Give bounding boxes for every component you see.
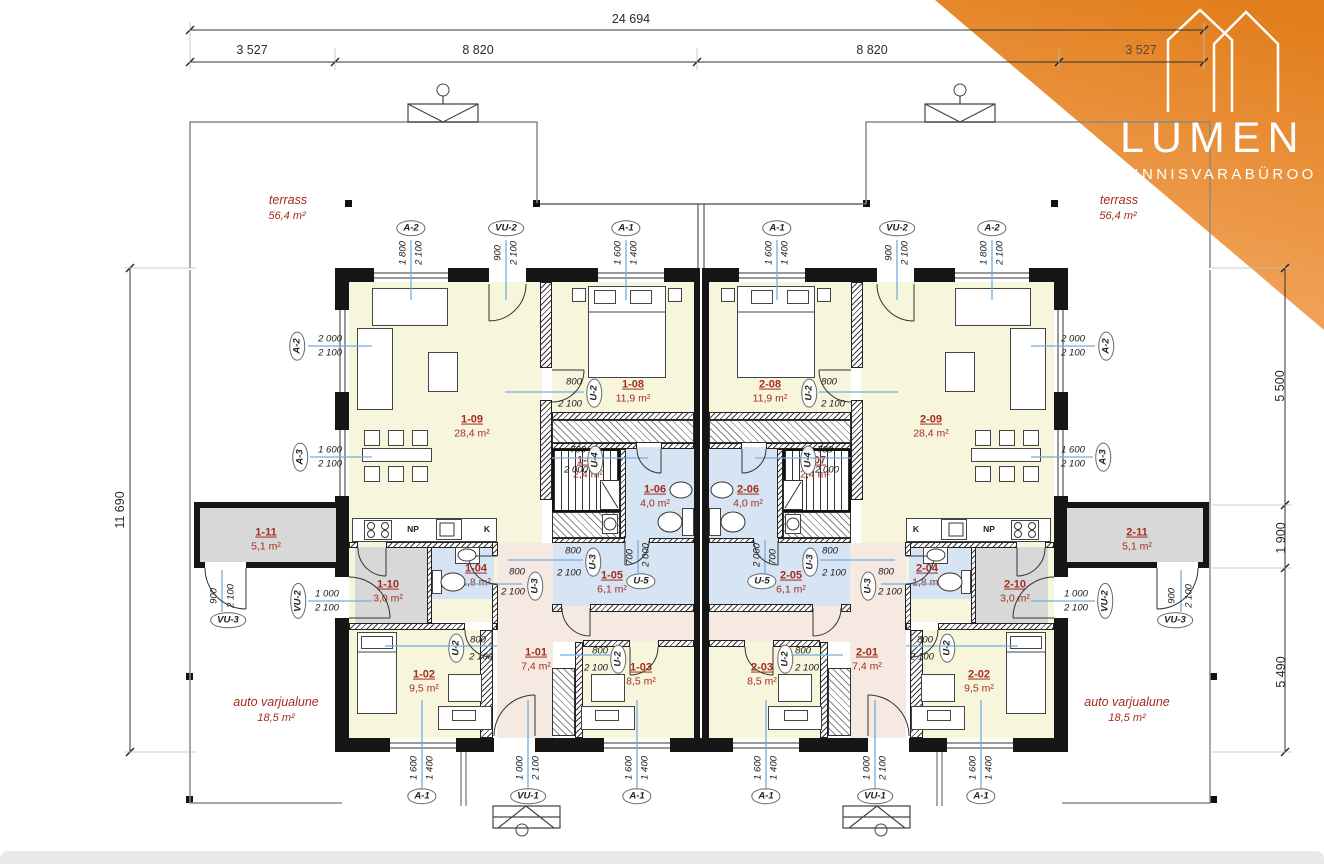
room-id: 2-08 <box>753 379 788 393</box>
opening-dim: 800 <box>565 546 581 557</box>
wall-party <box>694 268 709 738</box>
room-area: 7,4 m² <box>852 660 882 673</box>
nightstand <box>668 288 682 302</box>
opening-dim: 1 600 <box>613 241 624 265</box>
room-id: 2-11 <box>1122 527 1152 541</box>
room-id: 1-04 <box>461 563 491 577</box>
dining-table <box>971 448 1041 462</box>
room-label-2-03: 2-038,5 m² <box>747 662 777 689</box>
dim-right2: 1 900 <box>1274 522 1288 553</box>
chair <box>999 466 1015 482</box>
coffee-table <box>945 352 975 392</box>
chair <box>975 466 991 482</box>
room-area: 9,5 m² <box>964 682 994 695</box>
room-id: 1-08 <box>616 379 651 393</box>
dining-table <box>362 448 432 462</box>
sofa <box>955 288 1031 326</box>
monitor <box>452 710 476 721</box>
opening-dim: 900 <box>209 588 220 604</box>
floor-plan-canvas: LUMEN KINNISVARABÜROO 24 6943 5278 8208 … <box>0 0 1324 864</box>
room-id: 1-10 <box>373 579 403 593</box>
dim-total-width: 24 694 <box>612 12 650 26</box>
terrace-right-area: 56,4 m² <box>1099 210 1136 222</box>
opening-tag-U-4: U-4 <box>800 445 816 474</box>
opening-tag-VU-2: VU-2 <box>488 220 524 236</box>
room-area: 3,0 m² <box>373 592 403 605</box>
opening-dim: 800 <box>566 377 582 388</box>
nightstand <box>721 288 735 302</box>
pillow <box>751 290 773 304</box>
pillow <box>630 290 652 304</box>
carport-post <box>186 796 193 803</box>
opening-dim: 1 400 <box>984 756 995 780</box>
room-area: 1,8 m² <box>461 576 491 589</box>
partition <box>938 623 1054 630</box>
opening-dim: 800 <box>878 567 894 578</box>
kitchen-k-label: K <box>484 524 490 534</box>
partition <box>709 640 745 647</box>
carport-right-label: auto varjualune <box>1084 695 1169 709</box>
opening-dim: 1 600 <box>624 756 635 780</box>
window-gap <box>390 738 456 752</box>
wardrobe <box>552 668 575 736</box>
opening-dim: 2 100 <box>469 652 493 663</box>
window-gap <box>598 268 664 282</box>
opening-dim: 1 400 <box>640 756 651 780</box>
room-label-1-03: 1-038,5 m² <box>626 662 656 689</box>
terrace-post <box>345 200 352 207</box>
opening-tag-U-3: U-3 <box>802 547 818 576</box>
opening-tag-A-1: A-1 <box>611 220 640 236</box>
opening-dim: 1 800 <box>398 241 409 265</box>
door-gap <box>489 268 526 282</box>
partition <box>851 282 863 368</box>
opening-tag-U-2: U-2 <box>801 378 817 407</box>
opening-tag-U-2: U-2 <box>448 633 464 662</box>
opening-dim: 800 <box>917 635 933 646</box>
wardrobe <box>552 420 694 443</box>
room-id: 2-10 <box>1000 579 1030 593</box>
kitchen-np-label: NP <box>983 524 995 534</box>
window-gap <box>374 268 448 282</box>
opening-dim: 2 000 <box>1061 334 1085 345</box>
room-label-2-10: 2-103,0 m² <box>1000 579 1030 606</box>
opening-dim: 1 600 <box>1061 445 1085 456</box>
opening-dim: 2 100 <box>795 663 819 674</box>
partition <box>778 538 851 543</box>
opening-tag-VU-2: VU-2 <box>290 583 306 619</box>
room-area: 4,0 m² <box>640 497 670 510</box>
room-label-1-10: 1-103,0 m² <box>373 579 403 606</box>
room-label-2-02: 2-029,5 m² <box>964 669 994 696</box>
room-label-1-02: 1-029,5 m² <box>409 669 439 696</box>
opening-tag-A-3: A-3 <box>1095 442 1111 471</box>
pillow <box>594 290 616 304</box>
room-id: 1-11 <box>251 527 281 541</box>
hp-unit <box>600 480 620 510</box>
room-id: 1-06 <box>640 484 670 498</box>
window-gap <box>604 738 670 752</box>
opening-dim: 2 100 <box>557 568 581 579</box>
opening-tag-VU-3: VU-3 <box>1157 612 1193 628</box>
opening-dim: 800 <box>821 377 837 388</box>
kitchen-np-label: NP <box>407 524 419 534</box>
opening-dim: 700 <box>768 549 779 565</box>
opening-dim: 2 100 <box>995 241 1006 265</box>
opening-dim: 900 <box>493 245 504 261</box>
room-id: 2-02 <box>964 669 994 683</box>
room-label-1-08: 1-0811,9 m² <box>616 379 651 406</box>
opening-dim: 1 000 <box>1064 589 1088 600</box>
opening-dim: 2 100 <box>318 348 342 359</box>
opening-dim: 2 000 <box>815 465 839 476</box>
opening-dim: 2 100 <box>531 756 542 780</box>
opening-tag-U-5: U-5 <box>626 573 655 589</box>
opening-tag-A-2: A-2 <box>396 220 425 236</box>
partition <box>1045 542 1054 548</box>
opening-tag-U-3: U-3 <box>585 547 601 576</box>
partition <box>649 538 694 543</box>
opening-tag-A-1: A-1 <box>966 788 995 804</box>
opening-dim: 2 100 <box>910 652 934 663</box>
chair <box>412 466 428 482</box>
opening-dim: 2 100 <box>821 399 845 410</box>
desk <box>921 674 955 702</box>
room-id: 1-05 <box>597 570 627 584</box>
chair <box>364 466 380 482</box>
kitchen-sink <box>436 519 462 540</box>
wardrobe <box>828 668 851 736</box>
nightstand <box>817 288 831 302</box>
terrace-right-label: terrass <box>1100 193 1138 207</box>
opening-dim: 800 <box>470 635 486 646</box>
room-id: 2-04 <box>912 563 942 577</box>
coffee-table <box>428 352 458 392</box>
window-gap <box>733 738 799 752</box>
opening-tag-A-1: A-1 <box>622 788 651 804</box>
opening-dim: 2 100 <box>501 587 525 598</box>
logo-brand: LUMEN <box>1120 114 1306 163</box>
toilet-tank <box>709 508 721 536</box>
room-area: 7,4 m² <box>521 660 551 673</box>
opening-dim: 1 600 <box>318 445 342 456</box>
opening-dim: 700 <box>625 549 636 565</box>
opening-dim: 700 <box>817 445 833 456</box>
chair <box>1023 430 1039 446</box>
room-id: 2-03 <box>747 662 777 676</box>
chair <box>388 466 404 482</box>
room-label-1-09: 1-0928,4 m² <box>454 414 490 441</box>
opening-tag-VU-3: VU-3 <box>210 612 246 628</box>
room-label-2-08: 2-0811,9 m² <box>753 379 788 406</box>
door-gap <box>494 738 535 752</box>
opening-dim: 1 400 <box>425 756 436 780</box>
opening-tag-U-2: U-2 <box>610 644 626 673</box>
partition <box>552 538 625 543</box>
nightstand <box>572 288 586 302</box>
opening-dim: 1 600 <box>409 756 420 780</box>
dim-seg1: 3 527 <box>236 43 267 57</box>
room-id: 1-02 <box>409 669 439 683</box>
room-label-2-05: 2-056,1 m² <box>776 570 806 597</box>
partition <box>661 443 694 449</box>
opening-tag-U-2: U-2 <box>777 644 793 673</box>
carport-post <box>1210 796 1217 803</box>
room-id: 1-01 <box>521 647 551 661</box>
opening-dim: 2 100 <box>226 584 237 608</box>
opening-tag-U-3: U-3 <box>860 571 876 600</box>
stove <box>364 520 392 540</box>
opening-dim: 2 000 <box>641 543 652 567</box>
toilet-tank <box>432 570 442 594</box>
carport-post <box>186 673 193 680</box>
terrace-left-area: 56,4 m² <box>268 210 305 222</box>
room-label-2-01: 2-017,4 m² <box>852 647 882 674</box>
sofa <box>1010 328 1046 410</box>
room-area: 3,0 m² <box>1000 592 1030 605</box>
room-id: 2-01 <box>852 647 882 661</box>
opening-dim: 2 000 <box>752 543 763 567</box>
bottom-bar <box>0 851 1324 864</box>
opening-dim: 800 <box>822 546 838 557</box>
door-gap <box>1157 562 1198 570</box>
opening-dim: 2 100 <box>509 241 520 265</box>
pillow <box>787 290 809 304</box>
dim-seg3: 8 820 <box>856 43 887 57</box>
room-id: 2-05 <box>776 570 806 584</box>
partition <box>906 623 911 630</box>
room-label-2-06: 2-064,0 m² <box>733 484 763 511</box>
room-area: 28,4 m² <box>454 427 490 440</box>
opening-tag-U-4: U-4 <box>587 445 603 474</box>
opening-tag-U-3: U-3 <box>527 571 543 600</box>
terrace-left-label: terrass <box>269 193 307 207</box>
opening-dim: 2 100 <box>414 241 425 265</box>
opening-tag-VU-2: VU-2 <box>1097 583 1113 619</box>
partition <box>540 282 552 368</box>
window-gap <box>947 738 1013 752</box>
opening-dim: 2 000 <box>564 465 588 476</box>
partition <box>658 640 694 647</box>
room-area: 11,9 m² <box>753 392 788 405</box>
opening-tag-U-2: U-2 <box>939 633 955 662</box>
opening-dim: 900 <box>1167 588 1178 604</box>
room-area: 5,1 m² <box>1122 540 1152 553</box>
stove <box>1011 520 1039 540</box>
window-gap <box>739 268 805 282</box>
washer <box>602 514 618 534</box>
room-area: 11,9 m² <box>616 392 651 405</box>
opening-dim: 2 100 <box>1061 348 1085 359</box>
chair <box>975 430 991 446</box>
desk <box>448 674 482 702</box>
partition <box>905 542 911 556</box>
room-area: 8,5 m² <box>626 675 656 688</box>
door-gap <box>877 268 914 282</box>
opening-tag-A-2: A-2 <box>289 331 305 360</box>
opening-dim: 2 100 <box>822 568 846 579</box>
room-area: 8,5 m² <box>747 675 777 688</box>
partition <box>492 623 497 630</box>
partition <box>709 443 742 449</box>
partition <box>709 604 813 612</box>
opening-dim: 1 600 <box>764 241 775 265</box>
washbasin-counter <box>923 547 948 564</box>
toilet-tank <box>961 570 971 594</box>
opening-tag-A-1: A-1 <box>751 788 780 804</box>
chair <box>364 430 380 446</box>
door-gap <box>868 738 909 752</box>
partition <box>492 542 498 556</box>
opening-dim: 1 000 <box>315 589 339 600</box>
desk <box>778 674 812 702</box>
opening-dim: 2 100 <box>1184 584 1195 608</box>
room-id: 1-03 <box>626 662 656 676</box>
room-area: 6,1 m² <box>776 583 806 596</box>
wardrobe <box>709 420 851 443</box>
partition <box>552 412 694 420</box>
partition <box>851 400 863 500</box>
opening-tag-A-1: A-1 <box>762 220 791 236</box>
dim-seg4: 3 527 <box>1125 43 1156 57</box>
pillow <box>1010 636 1042 649</box>
opening-dim: 2 100 <box>584 663 608 674</box>
terrace-post <box>1051 200 1058 207</box>
partition <box>709 538 754 543</box>
room-label-1-11: 1-115,1 m² <box>251 527 281 554</box>
partition <box>540 400 552 500</box>
opening-dim: 1 400 <box>780 241 791 265</box>
opening-dim: 2 100 <box>1061 459 1085 470</box>
carport-left-area: 18,5 m² <box>257 712 294 724</box>
opening-dim: 2 100 <box>900 241 911 265</box>
opening-dim: 1 000 <box>515 756 526 780</box>
monitor <box>595 710 619 721</box>
room-area: 5,1 m² <box>251 540 281 553</box>
opening-tag-U-5: U-5 <box>747 573 776 589</box>
dim-right1: 5 500 <box>1273 370 1287 401</box>
opening-dim: 1 800 <box>979 241 990 265</box>
room-area: 4,0 m² <box>733 497 763 510</box>
desk <box>591 674 625 702</box>
partition <box>620 449 626 538</box>
room-id: 1-09 <box>454 414 490 428</box>
opening-dim: 2 100 <box>878 587 902 598</box>
chair <box>412 430 428 446</box>
room-label-1-01: 1-017,4 m² <box>521 647 551 674</box>
pillow <box>361 636 393 649</box>
partition <box>349 623 465 630</box>
room-label-2-04: 2-041,8 m² <box>912 563 942 590</box>
sofa <box>372 288 448 326</box>
dim-seg2: 8 820 <box>462 43 493 57</box>
monitor <box>927 710 951 721</box>
opening-tag-A-2: A-2 <box>1098 331 1114 360</box>
dim-right3: 5 490 <box>1274 656 1288 687</box>
opening-dim: 800 <box>795 646 811 657</box>
chair <box>999 430 1015 446</box>
opening-dim: 1 400 <box>629 241 640 265</box>
room-area: 28,4 m² <box>913 427 949 440</box>
chair <box>1023 466 1039 482</box>
hp-unit <box>783 480 803 510</box>
carport-left-label: auto varjualune <box>233 695 318 709</box>
carport-post <box>1210 673 1217 680</box>
opening-dim: 1 400 <box>769 756 780 780</box>
room-label-1-04: 1-041,8 m² <box>461 563 491 590</box>
opening-dim: 1 600 <box>968 756 979 780</box>
room-label-1-05: 1-056,1 m² <box>597 570 627 597</box>
sofa <box>357 328 393 410</box>
partition <box>590 604 694 612</box>
opening-dim: 2 100 <box>558 399 582 410</box>
partition <box>552 604 562 612</box>
opening-tag-VU-1: VU-1 <box>857 788 893 804</box>
partition <box>709 412 851 420</box>
opening-tag-VU-1: VU-1 <box>510 788 546 804</box>
kitchen-k-label: K <box>913 524 919 534</box>
room-area: 1,8 m² <box>912 576 942 589</box>
partition <box>841 604 851 612</box>
opening-dim: 2 100 <box>878 756 889 780</box>
opening-dim: 1 000 <box>862 756 873 780</box>
washbasin-counter <box>455 547 480 564</box>
dim-left-height: 11 690 <box>113 491 127 528</box>
carport-right-area: 18,5 m² <box>1108 712 1145 724</box>
logo-subtitle: KINNISVARABÜROO <box>1121 166 1317 183</box>
opening-dim: 2 100 <box>315 603 339 614</box>
opening-dim: 800 <box>509 567 525 578</box>
room-id: 2-06 <box>733 484 763 498</box>
toilet-tank <box>682 508 694 536</box>
terrace-post <box>533 200 540 207</box>
monitor <box>784 710 808 721</box>
partition <box>971 547 976 623</box>
window-gap <box>955 268 1029 282</box>
washer <box>785 514 801 534</box>
opening-dim: 2 100 <box>1064 603 1088 614</box>
opening-tag-VU-2: VU-2 <box>879 220 915 236</box>
partition <box>386 542 497 548</box>
opening-dim: 800 <box>592 646 608 657</box>
opening-dim: 2 100 <box>318 459 342 470</box>
chair <box>388 430 404 446</box>
opening-dim: 900 <box>884 245 895 261</box>
kitchen-sink <box>941 519 967 540</box>
room-label-2-11: 2-115,1 m² <box>1122 527 1152 554</box>
opening-dim: 700 <box>570 445 586 456</box>
opening-tag-A-2: A-2 <box>977 220 1006 236</box>
terrace-post <box>863 200 870 207</box>
opening-dim: 1 600 <box>753 756 764 780</box>
room-label-1-06: 1-064,0 m² <box>640 484 670 511</box>
opening-tag-A-3: A-3 <box>292 442 308 471</box>
room-area: 9,5 m² <box>409 682 439 695</box>
partition <box>349 542 358 548</box>
room-label-2-09: 2-0928,4 m² <box>913 414 949 441</box>
opening-dim: 2 000 <box>318 334 342 345</box>
door-gap <box>205 562 246 570</box>
opening-tag-U-2: U-2 <box>586 378 602 407</box>
room-area: 6,1 m² <box>597 583 627 596</box>
opening-tag-A-1: A-1 <box>407 788 436 804</box>
room-id: 2-09 <box>913 414 949 428</box>
